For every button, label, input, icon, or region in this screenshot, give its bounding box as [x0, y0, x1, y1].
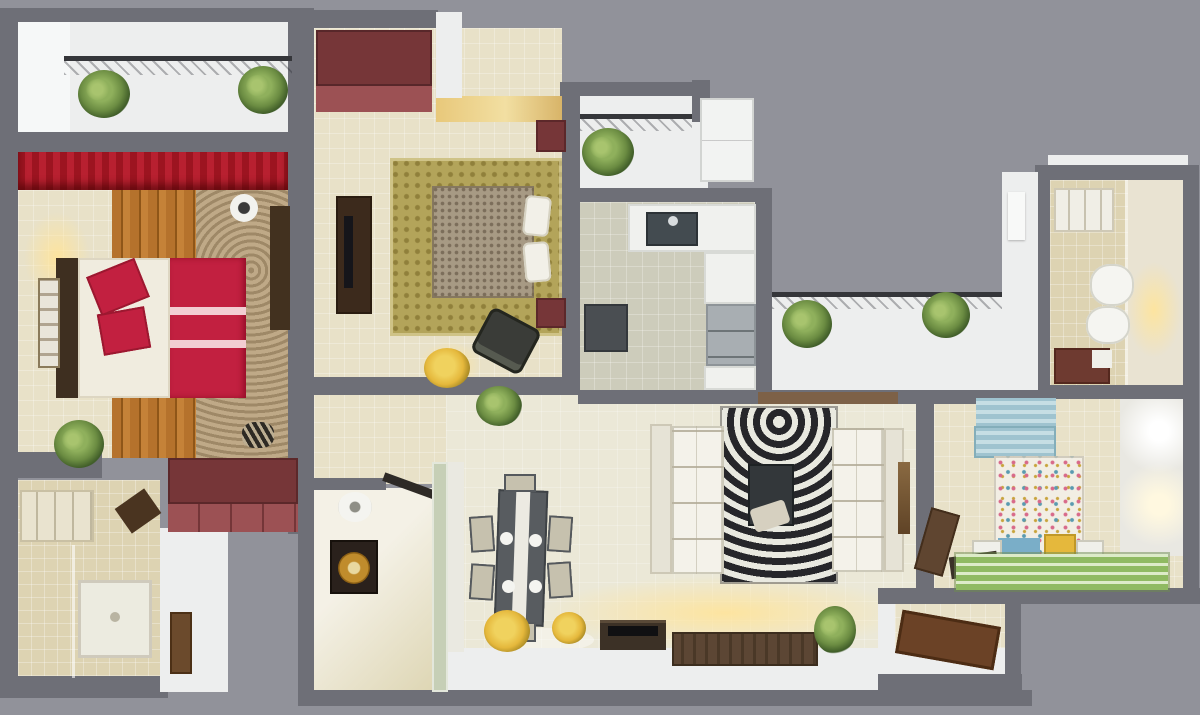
kitchen-counter-lower: [704, 366, 756, 390]
bedroom2-yellow-plant: [424, 348, 470, 388]
balcony-plant-right: [238, 66, 288, 114]
master-bed-blanket-stripe2: [170, 340, 246, 348]
bedroom2-pillow: [522, 195, 552, 237]
bathroom-tr-towel: [1092, 350, 1112, 368]
living-wall-art: [898, 462, 910, 534]
dining-chair-right2: [547, 561, 573, 599]
dining-plate3: [502, 580, 515, 593]
bathroom-tr-toilet: [1090, 264, 1134, 306]
wall-bathroom-tr-top: [1050, 165, 1183, 180]
second-bedroom-warm-wall: [436, 96, 562, 122]
kitchen-faucet: [668, 216, 678, 226]
bathroom-bl-glass-line: [72, 545, 75, 678]
wall-bathroom-tr-bottom: [1035, 385, 1183, 399]
utility-round-appliance: [338, 552, 370, 584]
wall-kitchen-right: [755, 188, 772, 392]
sofa-left: [672, 426, 724, 574]
floor-plan-render: [0, 0, 1200, 715]
bathroom-tr-glow: [1126, 262, 1182, 358]
bedroom2-nightstand-top: [536, 120, 566, 152]
wall-utility-top: [298, 478, 386, 490]
bedroom2-pillow2: [522, 241, 551, 283]
wall-utility-bottom: [298, 690, 462, 706]
master-side-table: [230, 194, 258, 222]
utility-basin: [338, 492, 372, 522]
dining-chair-left1: [469, 515, 495, 553]
wall-bedroom2-top: [300, 10, 438, 28]
corridor-palm: [476, 386, 522, 426]
bedroom2-tv-cabinet: [336, 196, 372, 314]
balcony-wall-highlight: [18, 22, 70, 132]
wall-foyer-right: [1005, 598, 1021, 686]
wall-utility-left: [298, 392, 314, 706]
master-pouf: [242, 422, 274, 448]
wall-outer-bottom-living: [440, 690, 1032, 706]
wall-kids-bottom: [878, 588, 1200, 604]
kids-green-rug: [956, 554, 1168, 590]
wall-entry-top: [560, 82, 708, 96]
master-bed-blanket-stripe: [170, 307, 246, 315]
dining-plate2: [529, 534, 542, 547]
dining-yellow-flowers: [552, 612, 586, 644]
dining-chair-top: [504, 474, 536, 492]
tv-console-long: [672, 632, 818, 666]
sofa-right: [832, 428, 884, 572]
bathroom-tr-bidet: [1086, 306, 1130, 344]
master-bed-pillow2: [97, 306, 152, 356]
master-dresser-mirror: [38, 278, 60, 368]
master-wardrobe-top: [168, 458, 298, 504]
entry-shoe-cabinet: [700, 98, 754, 182]
living-yellow-plant: [484, 610, 530, 652]
wall-living-north-warm: [758, 392, 898, 404]
exterior-block-left-door: [170, 612, 192, 674]
bedroom2-wardrobe-front: [316, 86, 432, 112]
kitchen-fridge: [706, 304, 756, 366]
dining-chair-left2: [469, 563, 495, 601]
tv-screen-flat: [608, 626, 658, 636]
master-wardrobe-tall: [270, 206, 290, 330]
kitchen-island-dark: [584, 304, 628, 352]
master-bed-blanket: [170, 258, 246, 398]
living-plant-right: [814, 606, 856, 654]
balcony-plant-left: [78, 70, 130, 118]
master-wardrobe-front: [168, 504, 298, 532]
entry-plant: [582, 128, 634, 176]
kitchen-counter-right: [704, 252, 756, 304]
exterior-wall-face-left-of-foyer: [878, 602, 895, 676]
kitchen-balcony-plant-left: [782, 300, 832, 348]
kids-window-band: [976, 398, 1056, 428]
wall-outer-left: [0, 8, 18, 698]
bathroom-bl-drain: [110, 612, 120, 622]
bedroom2-wardrobe-top: [316, 30, 432, 86]
exterior-block-panel: [1008, 192, 1025, 240]
dining-plate: [500, 532, 513, 545]
utility-white-wall-strip: [448, 462, 464, 652]
master-plant: [54, 420, 104, 468]
exterior-block-bedroom2: [436, 12, 462, 98]
dining-chair-right1: [547, 515, 573, 553]
dining-plate4: [529, 580, 542, 593]
sofa-left-back: [650, 424, 672, 574]
wall-balcony-bedroom-divider: [18, 132, 290, 152]
master-bed-canopy: [18, 150, 288, 190]
wall-bathroom-bl-bottom: [0, 676, 168, 698]
wall-outer-right: [1183, 165, 1199, 602]
wall-kitchen-top: [578, 188, 760, 202]
bedroom2-nightstand-bottom: [536, 298, 566, 328]
kids-bedroom-right-wall-face: [1120, 396, 1183, 556]
corridor-floor: [314, 392, 446, 484]
kids-bed-headboard: [974, 426, 1056, 458]
bedroom2-tv-screen: [344, 216, 353, 288]
bathroom-tr-vanity: [1054, 188, 1114, 232]
bathroom-bl-vanity: [20, 490, 94, 542]
kitchen-balcony-plant-right: [922, 292, 970, 338]
bedroom2-bed: [432, 186, 534, 298]
utility-glass-wall: [432, 462, 448, 692]
wall-outer-top-left: [0, 8, 306, 22]
